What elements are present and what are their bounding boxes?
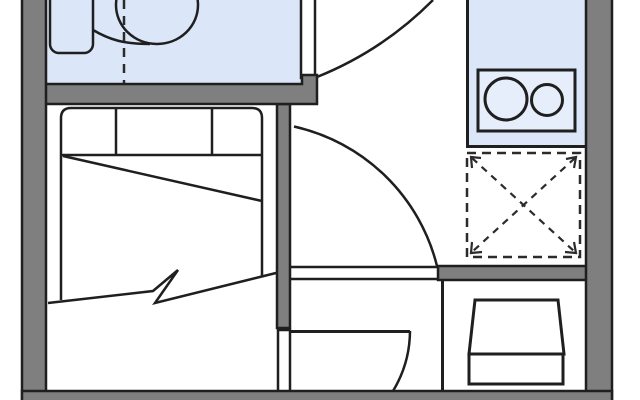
door-swing-arc-entrance bbox=[317, 0, 433, 77]
wall-left bbox=[22, 0, 46, 400]
floor-plan-canvas bbox=[0, 0, 640, 400]
door-swing-arc-closet bbox=[393, 331, 410, 391]
bed-break-line bbox=[48, 270, 280, 303]
door-swing-arc-hall bbox=[294, 127, 437, 267]
partition-bathroom-right bbox=[301, 0, 315, 78]
armchair-backrest bbox=[469, 300, 564, 354]
partition-closet-left bbox=[278, 330, 290, 392]
armchair-seat bbox=[469, 354, 563, 384]
wall-right bbox=[586, 0, 612, 400]
wall-mid-horizontal bbox=[438, 266, 588, 280]
bed-outline bbox=[61, 108, 262, 300]
bed-blanket-fold-line bbox=[63, 156, 262, 201]
bathroom-sink bbox=[50, 0, 93, 53]
wall-bottom bbox=[22, 391, 612, 400]
wall-mid-vertical bbox=[277, 104, 290, 328]
floor-plan-document bbox=[0, 0, 640, 400]
